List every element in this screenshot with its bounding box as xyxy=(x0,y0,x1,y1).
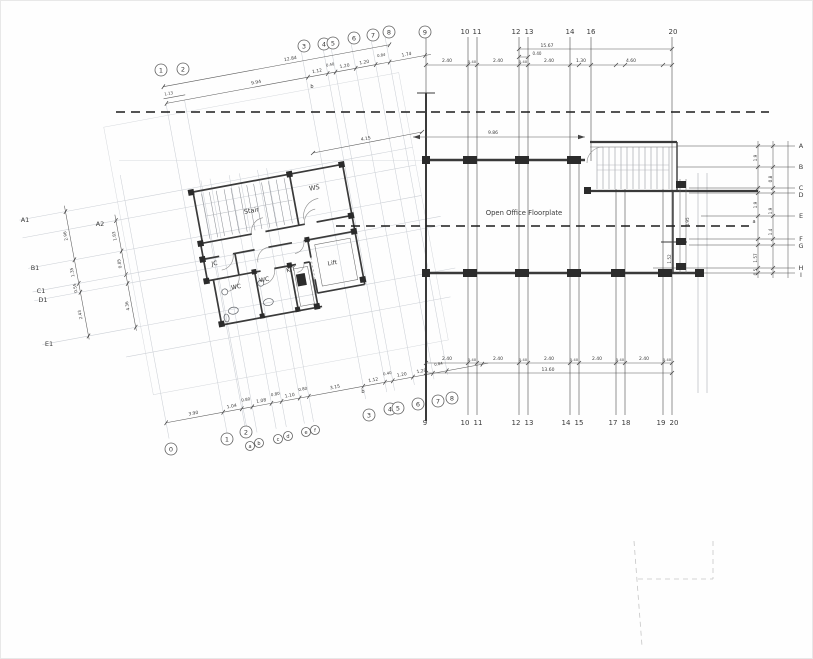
grid-label-bot-9: 9 xyxy=(423,419,427,427)
core-door-arcs xyxy=(212,198,332,291)
grid-label-bot-11: 11 xyxy=(474,419,483,427)
toilet-icon xyxy=(228,306,239,315)
dim-left-1-35: 1.35 xyxy=(69,267,76,277)
grid-label-bot-c1: 1 xyxy=(225,436,229,444)
dashed-reference-lines xyxy=(116,112,769,646)
dim-left-2-43: 2.43 xyxy=(77,309,84,319)
office-stair-treads xyxy=(597,147,669,189)
dim-b2-40-a: 2.40 xyxy=(442,356,452,362)
grid-label-bot-c8: 8 xyxy=(450,395,454,403)
grid-label-d1: D1 xyxy=(38,296,47,304)
dim-1-20-top-a: 1.20 xyxy=(339,62,350,70)
grid-label-bot-19: 19 xyxy=(657,419,666,427)
grid-label-bot-c3: 3 xyxy=(367,412,371,420)
grid-label-top-11: 11 xyxy=(473,28,482,36)
grid-label-a2: A2 xyxy=(96,220,105,228)
dim-left-4-36: 4.36 xyxy=(124,301,131,311)
grid-label-bot-10: 10 xyxy=(461,419,470,427)
grid-label-top-16: 16 xyxy=(587,28,596,36)
grid-label-top-8: 8 xyxy=(387,29,391,37)
room-label-kit: KIT xyxy=(286,266,297,275)
grid-label-bot-c5: 5 xyxy=(396,405,400,413)
room-label-wc1: WC xyxy=(231,283,242,292)
dim-2-40-e: 2.40 xyxy=(544,58,554,64)
grid-label-E: E xyxy=(799,212,803,220)
grid-label-bot-c2: 2 xyxy=(244,429,248,437)
grid-label-top-10: 10 xyxy=(461,28,470,36)
dim-right-1: 0.8 xyxy=(768,175,773,182)
dim-b0-40-a: 0.40 xyxy=(468,357,477,362)
dim-0-40-d: 0.40 xyxy=(519,59,528,64)
dim-2-40-a: 2.40 xyxy=(442,58,452,64)
grid-label-bot-18: 18 xyxy=(622,419,631,427)
dim-15-67: 15.67 xyxy=(541,43,554,49)
marker-a-mid: a xyxy=(752,219,755,225)
grid-label-top-20: 20 xyxy=(669,28,678,36)
arrowhead-icon xyxy=(578,135,585,139)
grid-label-bot-a: a xyxy=(248,444,251,450)
grid-label-top-1: 1 xyxy=(159,67,163,75)
grid-label-bot-17: 17 xyxy=(609,419,618,427)
dim-1-12-top: 1.12 xyxy=(312,68,323,76)
grid-label-top-14: 14 xyxy=(566,28,575,36)
dim-b2-40-e: 2.40 xyxy=(639,356,649,362)
grid-label-D: D xyxy=(798,191,803,199)
grid-label-top-12: 12 xyxy=(512,28,521,36)
arrowhead-icon xyxy=(413,135,420,139)
marker-b-bottom: b xyxy=(361,389,364,395)
room-label-ws: WS xyxy=(308,183,320,193)
grid-label-bot-14: 14 xyxy=(562,419,571,427)
dim-right-6: 0.5 xyxy=(753,268,758,275)
dim-0-80-b: 0.80 xyxy=(270,391,280,398)
dim-right-4: 1.4 xyxy=(768,228,773,235)
dim-left-1-83: 1.83 xyxy=(111,231,118,241)
grid-label-bot-b: b xyxy=(257,441,260,447)
site-boundary-dashed xyxy=(634,541,713,646)
dim-4-15: 4.15 xyxy=(360,135,371,143)
dim-1-10: 1.10 xyxy=(284,392,295,400)
grid-label-c1: C1 xyxy=(37,287,46,295)
dim-1-30: 1.30 xyxy=(576,58,586,64)
dim-13-60: 13.60 xyxy=(542,367,555,373)
grid-label-e1: E1 xyxy=(45,340,53,348)
office-stair-door-arc xyxy=(587,147,603,163)
dim-right-3: 1.9 xyxy=(768,207,773,214)
grid-label-top-13: 13 xyxy=(525,28,534,36)
dim-1-20-top-b: 1.20 xyxy=(359,59,370,67)
grid-label-bot-c: c xyxy=(277,437,280,443)
grid-label-top-7: 7 xyxy=(371,32,375,40)
dim-right-5: 1.57 xyxy=(753,253,758,263)
grid-label-bot-15: 15 xyxy=(575,419,584,427)
dim-2-40-c: 2.40 xyxy=(493,58,503,64)
dim-0-40-b: 0.40 xyxy=(468,59,477,64)
grid-label-B: B xyxy=(799,163,803,171)
floor-plan-page: 12.84 9.94 1.13 1.12 0.40 1.20 1.20 0.84… xyxy=(0,0,813,659)
dim-3-15: 3.15 xyxy=(330,384,341,392)
dim-0-80-a: 0.80 xyxy=(241,396,251,403)
office-columns xyxy=(422,156,704,277)
grid-label-G: G xyxy=(798,242,803,250)
dim-1-74-top: 1.74 xyxy=(401,51,412,59)
rotated-left-dim-chains: 2.96 1.35 0.55 2.43 1.83 0.85 4.36 xyxy=(58,197,139,341)
room-label-stair: Stair xyxy=(243,205,260,216)
dim-lift-1-52: 1.52 xyxy=(667,254,672,264)
rotated-grid-horizontals xyxy=(19,144,460,372)
grid-label-a1: A1 xyxy=(21,216,30,224)
dim-9-94: 9.94 xyxy=(251,79,262,87)
grid-label-bot-f: f xyxy=(314,428,316,434)
marker-b-top: b xyxy=(310,84,313,90)
room-label-jc: JC xyxy=(210,260,218,268)
grid-label-top-6: 6 xyxy=(352,35,356,43)
grid-label-bot-20: 20 xyxy=(670,419,679,427)
dim-4-60: 4.60 xyxy=(626,58,636,64)
dim-left-2-96: 2.96 xyxy=(62,231,69,241)
dim-1-13: 1.13 xyxy=(164,90,174,97)
dim-0-40-top: 0.40 xyxy=(325,61,335,68)
grid-label-b1: B1 xyxy=(31,264,40,272)
dim-9-86: 9.86 xyxy=(488,130,498,136)
grid-bubbles-top: 1 2 3 4 5 6 7 8 9 xyxy=(155,26,431,76)
dim-0-40-tr: 0.40 xyxy=(533,51,542,56)
grid-label-bot-c6: 6 xyxy=(416,401,420,409)
dim-b2-40-b: 2.40 xyxy=(493,356,503,362)
dim-0-84-top: 0.84 xyxy=(377,52,387,59)
dim-1-12-bot: 1.12 xyxy=(368,376,379,384)
dim-b2-40-c: 2.40 xyxy=(544,356,554,362)
dim-left-0-55: 0.55 xyxy=(72,283,79,293)
dim-1-04: 1.04 xyxy=(226,403,237,411)
basin-icon xyxy=(221,288,228,295)
service-core: Stair WS JC WC WC KIT Lift xyxy=(187,161,370,329)
dim-b0-40-e: 0.40 xyxy=(663,357,672,362)
grid-label-A: A xyxy=(799,142,804,150)
grid-label-bot-13: 13 xyxy=(525,419,534,427)
dim-left-0-85: 0.85 xyxy=(116,258,123,268)
dim-3-90: 3.90 xyxy=(188,410,199,418)
dim-0-40-bot: 0.40 xyxy=(383,370,393,377)
kitchen-sink xyxy=(296,273,307,286)
grid-label-top-2: 2 xyxy=(181,66,185,74)
dim-0-80-c: 0.80 xyxy=(298,385,308,392)
grid-label-top-3: 3 xyxy=(302,43,306,51)
dim-lift-4-95: 4.95 xyxy=(685,217,690,227)
grid-label-I: I xyxy=(800,271,802,279)
grid-label-bot-12: 12 xyxy=(512,419,521,427)
dim-1-20-bot-a: 1.20 xyxy=(396,371,407,379)
dim-1-08: 1.08 xyxy=(256,397,267,405)
grid-label-bot-0: 0 xyxy=(169,446,173,454)
dim-right-2: 1.9 xyxy=(753,201,758,208)
dim-right-0: 1.9 xyxy=(753,154,758,161)
dim-b0-40-d: 0.40 xyxy=(616,357,625,362)
floor-plan-drawing: 12.84 9.94 1.13 1.12 0.40 1.20 1.20 0.84… xyxy=(1,1,813,659)
grid-bubbles-bottom: 0 1 2 a b c d e f 3 4 5 6 7 8 xyxy=(165,392,458,455)
grid-label-top-4: 4 xyxy=(322,41,326,49)
room-label-lift: Lift xyxy=(327,259,338,268)
grid-label-top-9: 9 xyxy=(423,29,427,37)
wc-fixtures xyxy=(218,266,315,322)
rotated-grid-verticals xyxy=(104,34,452,448)
grid-label-bot-e: e xyxy=(304,430,307,436)
grid-label-bot-c7: 7 xyxy=(436,398,440,406)
core-walls xyxy=(191,164,367,326)
grid-label-bot-d: d xyxy=(286,434,289,440)
grid-labels: 1 2 3 4 5 6 7 8 9 10 11 12 13 14 16 20 9… xyxy=(21,26,804,455)
dim-b2-40-d: 2.40 xyxy=(592,356,602,362)
grid-label-bot-c4: 4 xyxy=(388,406,392,414)
room-label-office: Open Office Floorplate xyxy=(486,209,562,217)
grid-label-top-5: 5 xyxy=(331,40,335,48)
dim-b0-40-c: 0.40 xyxy=(570,357,579,362)
dim-b0-40-b: 0.40 xyxy=(519,357,528,362)
